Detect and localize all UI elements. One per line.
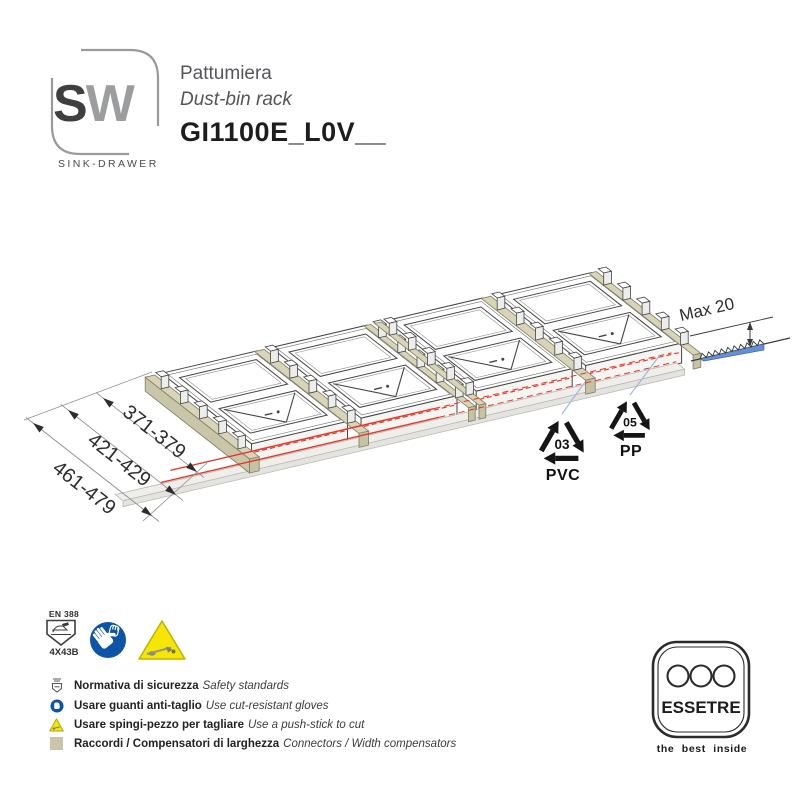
logo-caption: SINK-DRAWER <box>58 158 159 170</box>
datasheet-page: SW SINK-DRAWER Pattumiera Dust-bin rack … <box>0 0 800 800</box>
title-block: Pattumiera Dust-bin rack GI1100E_L0V__ <box>180 63 510 148</box>
legend-it: Raccordi / Compensatori di larghezza <box>74 738 279 750</box>
legend-it: Usare spingi-pezzo per tagliare <box>74 719 244 731</box>
cutting-hazard-warning-icon <box>137 619 187 661</box>
gloves-mini-icon <box>48 699 65 713</box>
recycling-code: 05 <box>623 416 637 430</box>
legend-en: Safety standards <box>203 680 289 692</box>
legend-it: Normativa di sicurezza <box>74 680 199 692</box>
mandatory-gloves-icon <box>89 621 127 659</box>
saw-blade-icon <box>690 317 790 361</box>
legend-en: Connectors / Width compensators <box>283 738 456 750</box>
essetre-badge: ESSETRE <box>651 640 751 739</box>
legend-text: Normativa di sicurezzaSafety standards <box>74 680 289 692</box>
recycling-triangle-icon: 05 <box>603 396 657 445</box>
recycling-code: 03 <box>554 437 570 452</box>
en388-pictogram: EN 388 4X43B <box>44 609 84 658</box>
legend-text: Raccordi / Compensatori di larghezzaConn… <box>74 738 456 750</box>
brand-logo: SW SINK-DRAWER <box>45 42 170 182</box>
legend-text: Usare guanti anti-taglioUse cut-resistan… <box>74 700 329 712</box>
en388-shield-icon <box>44 619 78 647</box>
legend-row-push-stick: Usare spingi-pezzo per tagliareUse a pus… <box>48 716 364 733</box>
compensator-swatch <box>48 737 65 750</box>
logo-letter-s: S <box>53 75 86 133</box>
legend-row-safety-standards: Normativa di sicurezzaSafety standards <box>48 677 289 694</box>
en388-mini-icon <box>48 678 65 694</box>
essetre-name: ESSETRE <box>661 698 740 717</box>
recycling-symbol-pp: 05 PP <box>603 396 659 461</box>
en388-rating: 4X43B <box>44 647 84 658</box>
material-name-pp: PP <box>603 443 659 461</box>
recycling-triangle-icon: 03 <box>532 415 592 469</box>
essetre-logo: ESSETRE the best inside <box>651 640 753 755</box>
en388-standard-label: EN 388 <box>44 609 84 619</box>
logo-letter-w: W <box>86 75 133 133</box>
product-title-it: Pattumiera <box>180 63 510 85</box>
product-title-en: Dust-bin rack <box>180 89 510 111</box>
legend-it: Usare guanti anti-taglio <box>74 700 202 712</box>
material-name-pvc: PVC <box>532 467 594 485</box>
essetre-tagline: the best inside <box>651 743 753 755</box>
logo-monogram: SW <box>53 78 133 130</box>
legend-text: Usare spingi-pezzo per tagliareUse a pus… <box>74 719 364 731</box>
product-code: GI1100E_L0V__ <box>180 117 510 148</box>
legend-row-compensators: Raccordi / Compensatori di larghezzaConn… <box>48 735 456 752</box>
legend-en: Use cut-resistant gloves <box>206 700 329 712</box>
recycling-symbol-pvc: 03 PVC <box>532 415 594 485</box>
warning-mini-icon <box>48 718 65 732</box>
legend-en: Use a push-stick to cut <box>248 719 364 731</box>
legend-row-gloves: Usare guanti anti-taglioUse cut-resistan… <box>48 697 329 714</box>
